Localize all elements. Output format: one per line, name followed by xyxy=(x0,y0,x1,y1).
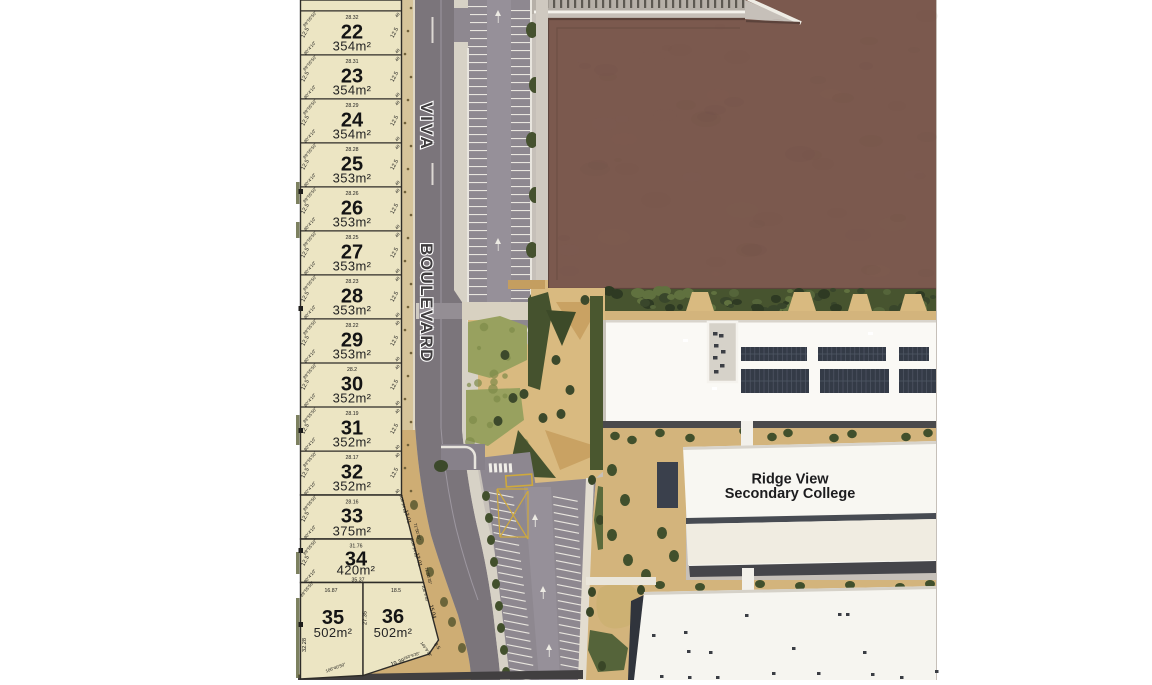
svg-text:353m²: 353m² xyxy=(333,347,372,362)
svg-text:353m²: 353m² xyxy=(333,170,372,185)
svg-text:28.16: 28.16 xyxy=(346,499,359,505)
svg-text:420m²: 420m² xyxy=(337,563,376,578)
svg-text:28.26: 28.26 xyxy=(346,191,359,197)
svg-text:32.28: 32.28 xyxy=(302,638,308,652)
svg-text:354m²: 354m² xyxy=(333,38,372,53)
svg-text:28.31: 28.31 xyxy=(346,59,359,65)
svg-text:502m²: 502m² xyxy=(374,625,413,640)
svg-text:Secondary College: Secondary College xyxy=(725,486,856,502)
svg-text:502m²: 502m² xyxy=(314,625,353,640)
svg-text:VIVA: VIVA xyxy=(417,102,436,152)
svg-text:BOULEVARD: BOULEVARD xyxy=(417,243,436,363)
svg-text:16.87: 16.87 xyxy=(325,588,338,594)
svg-text:18.5: 18.5 xyxy=(391,588,401,594)
svg-text:28.28: 28.28 xyxy=(346,147,359,153)
svg-text:353m²: 353m² xyxy=(333,258,372,273)
svg-text:28.32: 28.32 xyxy=(346,15,359,21)
svg-text:375m²: 375m² xyxy=(333,524,372,539)
svg-text:27.35: 27.35 xyxy=(363,611,369,625)
svg-text:354m²: 354m² xyxy=(333,82,372,97)
svg-text:353m²: 353m² xyxy=(333,302,372,317)
svg-text:28.19: 28.19 xyxy=(346,411,359,417)
svg-text:28.22: 28.22 xyxy=(346,323,359,329)
svg-text:352m²: 352m² xyxy=(333,479,372,494)
svg-text:28.17: 28.17 xyxy=(346,455,359,461)
svg-text:28.29: 28.29 xyxy=(346,103,359,109)
svg-text:28.2: 28.2 xyxy=(347,367,357,373)
svg-text:28.23: 28.23 xyxy=(346,279,359,285)
svg-text:352m²: 352m² xyxy=(333,391,372,406)
svg-text:28.25: 28.25 xyxy=(346,235,359,241)
svg-text:352m²: 352m² xyxy=(333,435,372,450)
svg-text:354m²: 354m² xyxy=(333,126,372,141)
svg-text:353m²: 353m² xyxy=(333,214,372,229)
